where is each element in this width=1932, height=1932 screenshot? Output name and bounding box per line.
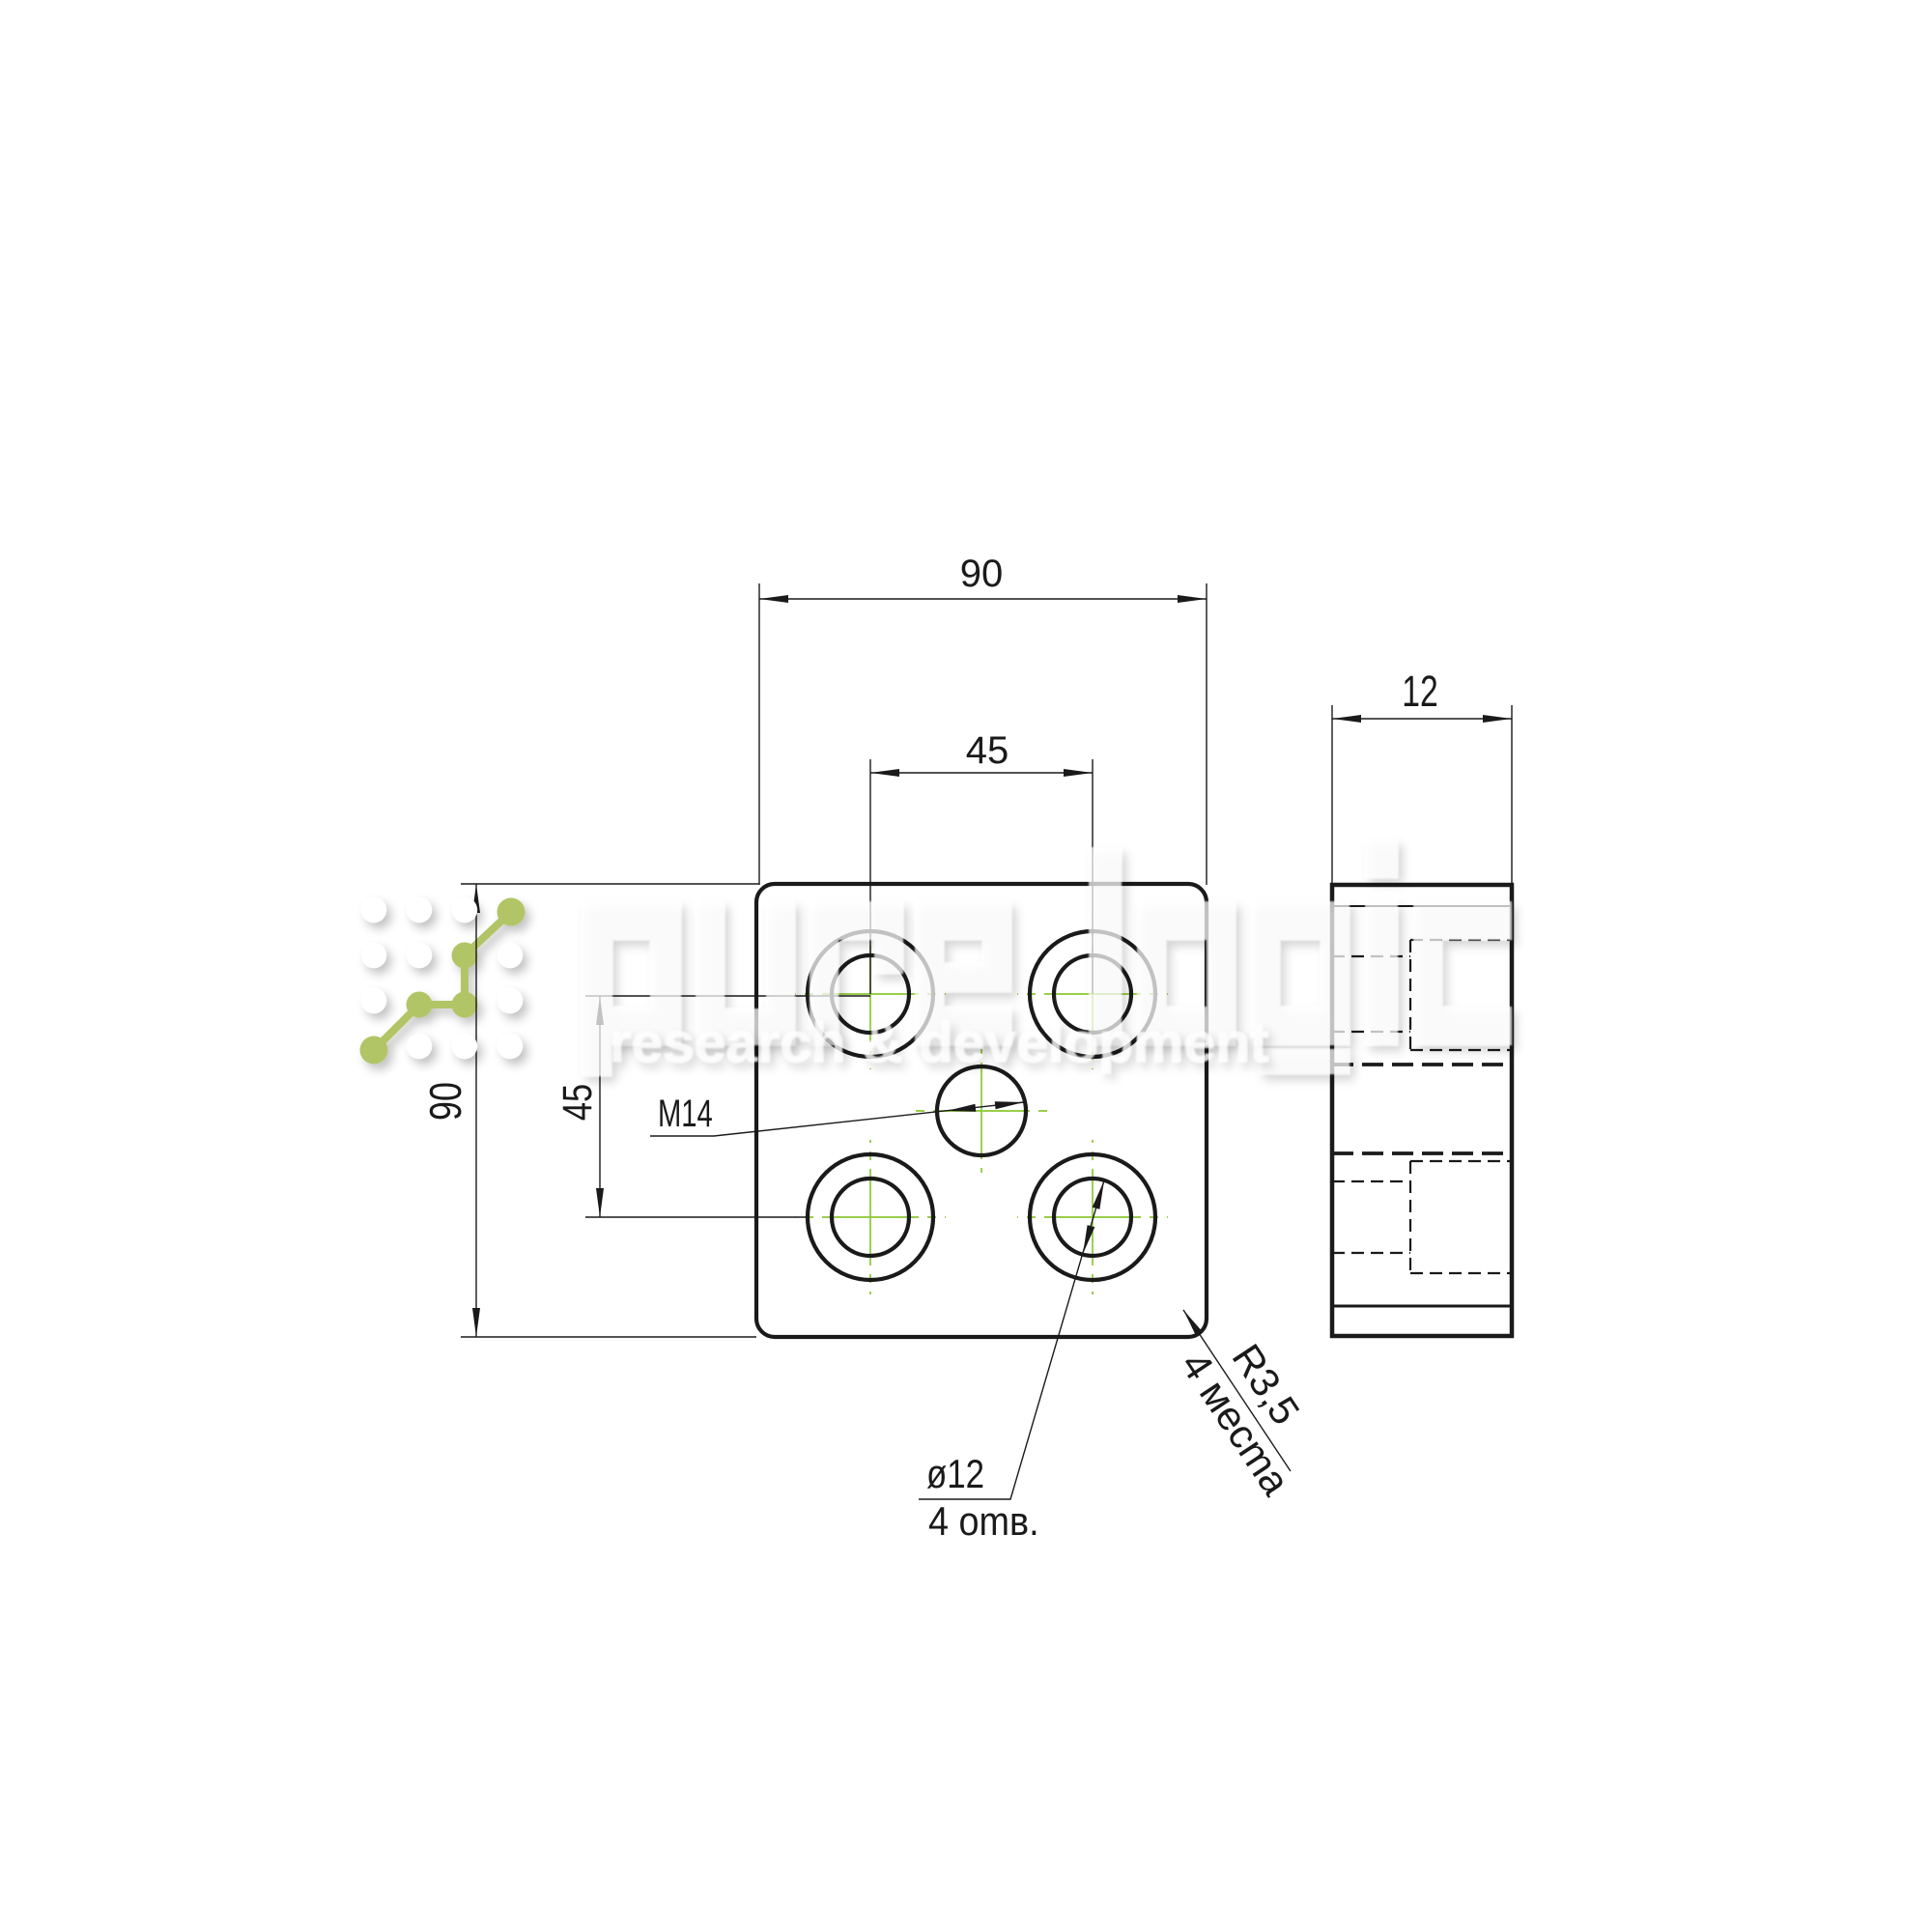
svg-text:4 omв.: 4 omв. xyxy=(928,1499,1039,1544)
svg-text:90: 90 xyxy=(421,1082,470,1121)
svg-text:45: 45 xyxy=(966,729,1009,772)
svg-text:ø12: ø12 xyxy=(926,1452,984,1497)
svg-text:45: 45 xyxy=(554,1084,600,1121)
svg-text:M14: M14 xyxy=(658,1093,713,1136)
svg-text:90: 90 xyxy=(960,553,1004,595)
svg-text:12: 12 xyxy=(1402,668,1438,716)
svg-text:research & development: research & development xyxy=(610,1011,1269,1074)
